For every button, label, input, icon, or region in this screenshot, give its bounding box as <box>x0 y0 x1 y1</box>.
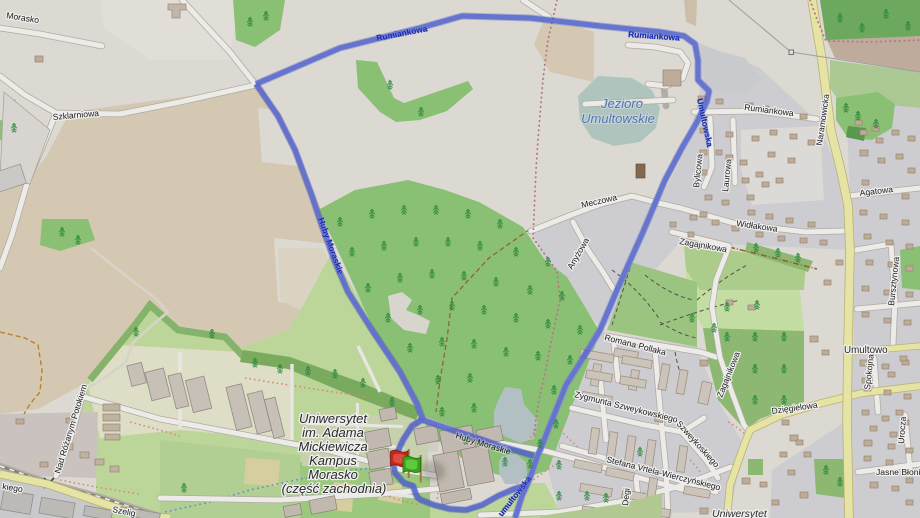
svg-text:Morasko: Morasko <box>308 467 358 482</box>
svg-text:Kampus: Kampus <box>309 453 357 468</box>
svg-text:Mickiewicza: Mickiewicza <box>298 439 367 454</box>
svg-text:Degi: Degi <box>620 487 632 506</box>
svg-text:Urocza: Urocza <box>896 416 908 444</box>
svg-text:im. Adama: im. Adama <box>302 425 364 440</box>
svg-text:Uniwersytet: Uniwersytet <box>712 508 768 518</box>
svg-text:(część zachodnia): (część zachodnia) <box>282 481 387 496</box>
svg-text:Umultowo: Umultowo <box>844 345 888 356</box>
svg-text:Jezioro: Jezioro <box>600 96 643 111</box>
svg-text:Uniwersytet: Uniwersytet <box>299 411 368 426</box>
svg-text:Umultowskie: Umultowskie <box>581 111 655 126</box>
svg-text:Jasne Błonie: Jasne Błonie <box>876 467 920 477</box>
